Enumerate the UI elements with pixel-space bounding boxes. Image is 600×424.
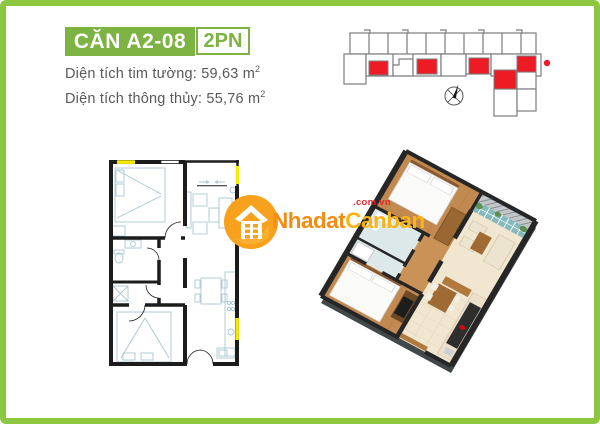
compass-icon — [445, 84, 463, 105]
watermark-domain: .com.vn — [353, 197, 391, 208]
floor-plan-2d — [109, 160, 239, 366]
window-marker — [235, 318, 239, 340]
area-clear-sup: 2 — [260, 89, 265, 99]
house-logo-icon — [224, 195, 278, 249]
area-wall-line: Diện tích tim tường: 59,63 m2 — [65, 64, 260, 82]
building-key-plan — [336, 21, 556, 121]
watermark-brand-secondary: Canban — [345, 208, 425, 233]
current-unit-dot — [544, 60, 550, 66]
watermark-brand: NhadatCanban — [272, 208, 425, 234]
floor-plan-3d-rooms — [321, 151, 536, 366]
floor-plan-2d-windows — [117, 160, 239, 340]
area-clear-value: 55,76 m — [202, 91, 260, 107]
area-wall-label: Diện tích tim tường: — [65, 66, 197, 82]
watermark-brand-primary: Nhadat — [272, 208, 345, 233]
unit-code-badge: CĂN A2-08 — [65, 27, 195, 56]
floor-plan-2d-furniture — [111, 168, 237, 362]
window-marker — [117, 160, 135, 164]
unit-type-label: 2PN — [204, 30, 243, 53]
highlighted-unit — [469, 58, 489, 74]
area-clear-line: Diện tích thông thủy: 55,76 m2 — [65, 89, 265, 107]
area-wall-value: 59,63 m — [197, 66, 255, 82]
brochure-page: CĂN A2-08 2PN Diện tích tim tường: 59,63… — [0, 0, 600, 424]
highlighted-unit — [417, 59, 437, 74]
window-marker — [236, 166, 239, 184]
unit-code-label: CĂN A2-08 — [74, 30, 186, 54]
floor-plan-3d — [301, 134, 581, 386]
area-wall-sup: 2 — [255, 64, 260, 74]
floor-plan-2d-walls — [109, 160, 239, 366]
highlighted-unit — [494, 70, 516, 89]
unit-type-badge: 2PN — [196, 27, 250, 55]
highlighted-unit — [369, 61, 388, 75]
area-clear-label: Diện tích thông thủy: — [65, 91, 202, 107]
highlighted-unit — [517, 56, 536, 72]
